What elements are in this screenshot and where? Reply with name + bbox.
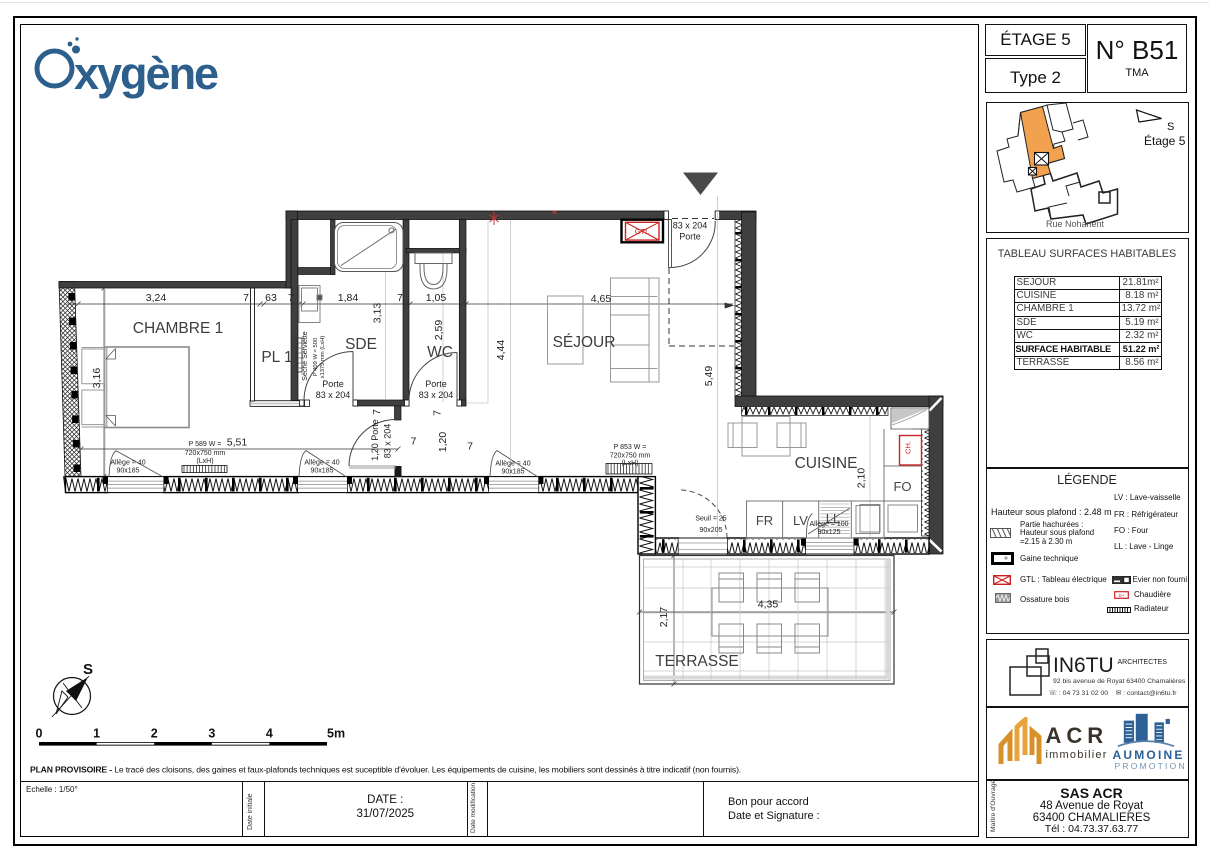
svg-text:1,05: 1,05 (426, 292, 447, 304)
svg-text:1,84: 1,84 (338, 292, 359, 304)
svg-text:3,13: 3,13 (372, 303, 384, 324)
svg-text:Étage 5: Étage 5 (1144, 133, 1186, 148)
svg-text:Seuil = 25: Seuil = 25 (695, 516, 726, 523)
svg-text:TERRASSE: TERRASSE (655, 653, 739, 670)
svg-text:90x205: 90x205 (700, 527, 723, 534)
svg-text:P 409 W = 500: P 409 W = 500 (313, 338, 319, 376)
svg-text:83 x 204: 83 x 204 (419, 390, 454, 400)
svg-text:7: 7 (411, 436, 417, 448)
svg-text:7: 7 (288, 292, 294, 304)
svg-text:GTL: GTL (635, 227, 650, 236)
svg-text:Allège = 40: Allège = 40 (110, 460, 145, 467)
svg-text:Allège = 40: Allège = 40 (304, 460, 339, 467)
svg-text:4: 4 (266, 727, 273, 741)
svg-text:4,44: 4,44 (495, 340, 507, 361)
svg-text:SDE: SDE (345, 336, 377, 353)
svg-text:Rue Nohanent: Rue Nohanent (1045, 219, 1104, 229)
svg-text:x1375 mm (LxH): x1375 mm (LxH) (320, 336, 326, 379)
svg-text:D+: D+ (1119, 593, 1125, 598)
svg-text:4,65: 4,65 (591, 293, 612, 305)
svg-text:7: 7 (397, 292, 403, 304)
svg-text:CHAMBRE 1: CHAMBRE 1 (133, 320, 223, 337)
svg-text:LL: LL (826, 511, 840, 526)
svg-text:Porte: Porte (679, 232, 701, 242)
svg-text:1,20 Porte: 1,20 Porte (370, 419, 380, 461)
svg-text:CH.: CH. (904, 441, 913, 454)
svg-text:Porte: Porte (322, 379, 344, 389)
svg-text:83 x 204: 83 x 204 (673, 221, 708, 231)
svg-text:3,16: 3,16 (91, 368, 103, 389)
svg-text:2,10: 2,10 (856, 468, 868, 489)
svg-text:1: 1 (93, 727, 100, 741)
svg-text:PLAN PROVISOIRE - Le tracé des: PLAN PROVISOIRE - Le tracé des cloisons,… (30, 765, 741, 775)
svg-text:P 853 W =: P 853 W = (614, 444, 647, 451)
svg-text:90x185: 90x185 (117, 468, 140, 475)
svg-text:90x125: 90x125 (818, 529, 841, 536)
svg-text:7: 7 (432, 410, 444, 416)
svg-text:5,49: 5,49 (703, 366, 715, 387)
svg-text:CUISINE: CUISINE (795, 455, 858, 472)
svg-text:Porte: Porte (425, 379, 447, 389)
svg-text:83 x 204: 83 x 204 (316, 390, 351, 400)
svg-text:S: S (83, 661, 93, 678)
svg-text:2,17: 2,17 (658, 607, 670, 628)
svg-text:Sèche Serviette: Sèche Serviette (302, 331, 309, 381)
svg-text:90x185: 90x185 (311, 468, 334, 475)
svg-text:P 589 W =: P 589 W = (189, 441, 222, 448)
svg-text:1,20: 1,20 (437, 432, 449, 453)
svg-text:63: 63 (265, 292, 277, 304)
svg-text:7: 7 (243, 292, 249, 304)
svg-text:(LxH): (LxH) (621, 460, 638, 467)
svg-text:83 x 204: 83 x 204 (383, 424, 393, 459)
svg-text:LV: LV (793, 513, 808, 528)
svg-text:FR: FR (756, 513, 773, 528)
svg-text:5m: 5m (327, 727, 345, 741)
svg-text:7: 7 (467, 441, 473, 453)
svg-text:0: 0 (36, 727, 43, 741)
svg-text:Allège = 40: Allège = 40 (495, 461, 530, 468)
svg-text:PL 1: PL 1 (261, 349, 292, 366)
svg-text:5,51: 5,51 (227, 437, 248, 449)
svg-text:2: 2 (151, 727, 158, 741)
svg-text:SÉJOUR: SÉJOUR (553, 334, 616, 351)
svg-text:7: 7 (371, 409, 383, 415)
svg-text:3: 3 (208, 727, 215, 741)
svg-text:4,35: 4,35 (758, 599, 779, 611)
svg-text:2,59: 2,59 (433, 320, 445, 341)
svg-text:(LxH): (LxH) (196, 458, 213, 465)
svg-text:FO: FO (893, 479, 911, 494)
svg-text:720x750 mm: 720x750 mm (185, 450, 226, 457)
svg-text:S: S (1167, 121, 1174, 133)
svg-text:3,24: 3,24 (146, 292, 167, 304)
svg-text:90x185: 90x185 (502, 469, 525, 476)
svg-text:720x750 mm: 720x750 mm (610, 453, 651, 460)
svg-text:WC: WC (427, 344, 453, 361)
